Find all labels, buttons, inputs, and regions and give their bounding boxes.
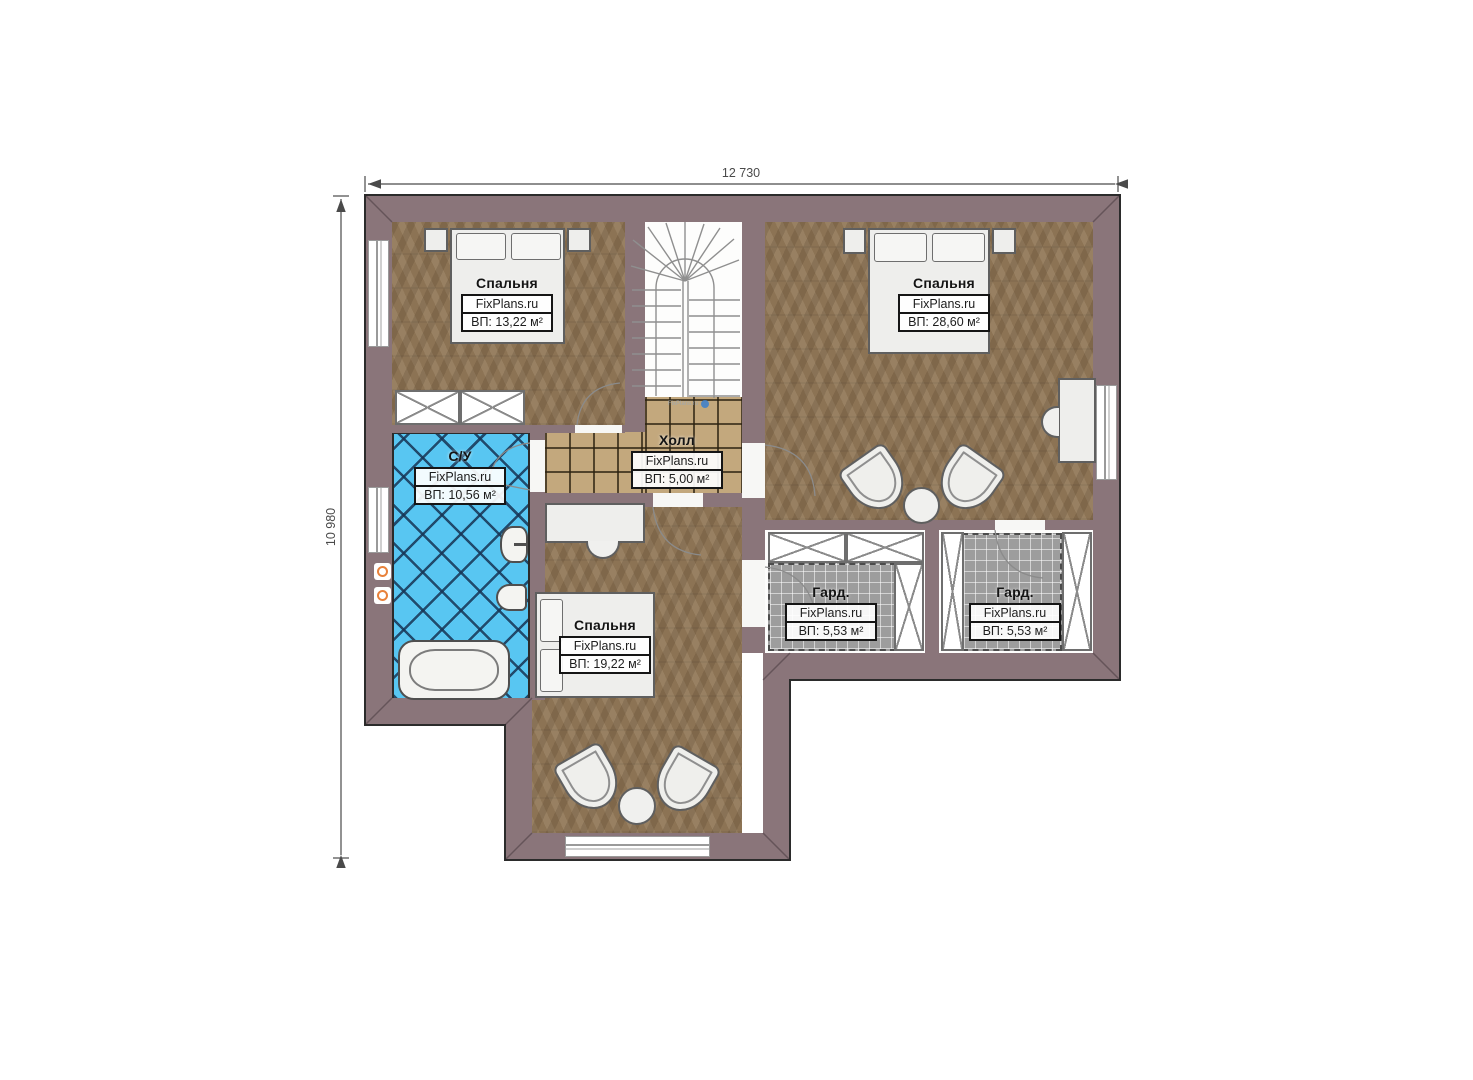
desk [545,503,645,543]
wardrobe-cabinet [941,532,964,651]
watermark-box: FixPlans.ru ВП: 10,56 м² [414,467,506,505]
desk [1058,378,1096,463]
watermark-box: FixPlans.ru ВП: 28,60 м² [898,294,990,332]
wardrobe-cabinet [1062,532,1092,651]
staircase-floor [645,222,742,400]
room-area: ВП: 5,00 м² [633,469,721,487]
room-name: Спальня [574,617,636,633]
dimension-height-label: 10 980 [324,508,338,546]
wall-wardrobe-top-right [1045,520,1093,530]
watermark-box: FixPlans.ru ВП: 13,22 м² [461,294,553,332]
round-table [618,787,656,825]
room-area: ВП: 5,53 м² [787,621,875,639]
wall-stair-left [625,222,645,432]
pillow [874,233,927,262]
mini-watermark-text: FixPlans.ru [668,401,698,407]
watermark-brand: FixPlans.ru [633,453,721,469]
window-right-bedroom2 [1096,385,1117,480]
wall-top [365,195,1120,222]
room-area: ВП: 10,56 м² [416,485,504,503]
dimension-width-label: 12 730 [722,166,760,180]
watermark-brand: FixPlans.ru [416,469,504,485]
door-opening-hall-bedroom3 [653,493,703,507]
room-label-bedroom-bottom: Спальня FixPlans.ru ВП: 19,22 м² [559,617,651,674]
wardrobe-cabinet [460,390,525,425]
room-area: ВП: 13,22 м² [463,312,551,330]
door-opening-bedroom1 [575,425,622,433]
window-left-bedroom1 [368,240,389,347]
mini-watermark-dot-icon [701,400,709,408]
wall-bottom-left-section [365,698,532,725]
room-name: Холл [659,432,695,448]
watermark-brand: FixPlans.ru [561,638,649,654]
door-opening-wardrobe-right [995,520,1045,530]
wall-mid-vertical [742,498,765,560]
watermark-box: FixPlans.ru ВП: 5,53 м² [969,603,1061,641]
room-label-wardrobe-right: Гард. FixPlans.ru ВП: 5,53 м² [969,584,1061,641]
door-opening-wardrobe-left [742,560,765,627]
watermark-brand: FixPlans.ru [787,605,875,621]
room-label-wardrobe-left: Гард. FixPlans.ru ВП: 5,53 м² [785,584,877,641]
round-table [903,487,940,524]
nightstand [424,228,448,252]
watermark-box: FixPlans.ru ВП: 19,22 м² [559,636,651,674]
heating-pipe [374,563,391,580]
heating-pipe [374,587,391,604]
nightstand [567,228,591,252]
bathtub [398,640,510,700]
wall-bedroom-bottom-right [763,653,790,860]
room-label-bathroom: С/У FixPlans.ru ВП: 10,56 м² [414,448,506,505]
room-area: ВП: 5,53 м² [971,621,1059,639]
pillow [511,233,561,260]
watermark-box: FixPlans.ru ВП: 5,00 м² [631,451,723,489]
floor-plan-canvas: 12 730 10 980 Спальня FixPlans.ru ВП: 13… [0,0,1473,1080]
window-bottom-bedroom3 [565,836,710,857]
watermark-brand: FixPlans.ru [971,605,1059,621]
door-opening-hall-bedroom2 [742,443,765,498]
nightstand [992,228,1016,254]
room-name: Спальня [476,275,538,291]
sink [500,526,528,563]
wardrobe-cabinet [768,532,846,563]
pillow [932,233,985,262]
watermark-brand: FixPlans.ru [900,296,988,312]
room-area: ВП: 19,22 м² [561,654,649,672]
toilet [496,584,527,611]
watermark-box: FixPlans.ru ВП: 5,53 м² [785,603,877,641]
room-area: ВП: 28,60 м² [900,312,988,330]
window-left-bathroom [368,487,389,553]
room-name: Гард. [996,584,1034,600]
room-name: Спальня [913,275,975,291]
room-name: Гард. [812,584,850,600]
door-opening-bathroom [530,440,545,492]
watermark-brand: FixPlans.ru [463,296,551,312]
wardrobe-cabinet [846,532,924,563]
room-label-hall: Холл FixPlans.ru ВП: 5,00 м² [631,432,723,489]
wall-bottom-right-section [763,653,1120,680]
mini-watermark: FixPlans.ru [668,400,709,408]
wall-stair-right-upper [742,222,765,443]
hall-floor-extension [545,432,645,497]
wall-mid-vertical-lower [742,627,765,653]
wardrobe-cabinet [395,390,460,425]
nightstand [843,228,866,254]
room-label-bedroom-top-left: Спальня FixPlans.ru ВП: 13,22 м² [461,275,553,332]
wardrobe-cabinet [894,563,924,651]
wall-wardrobe-divider [925,530,939,653]
pillow [456,233,506,260]
room-name: С/У [448,448,471,464]
wall-wardrobe-top-left [765,520,995,530]
room-label-bedroom-top-right: Спальня FixPlans.ru ВП: 28,60 м² [898,275,990,332]
